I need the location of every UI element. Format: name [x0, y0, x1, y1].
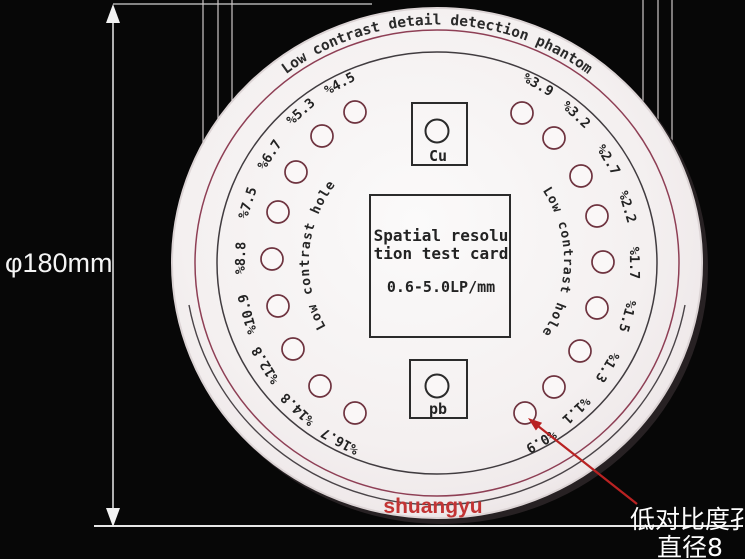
contrast-hole: [285, 161, 307, 183]
callout-text-line1: 低对比度孔: [630, 505, 745, 534]
contrast-hole: [569, 340, 591, 362]
phantom-disc: [172, 8, 702, 518]
contrast-hole: [543, 376, 565, 398]
contrast-hole: [309, 375, 331, 397]
contrast-hole: [267, 201, 289, 223]
contrast-hole: [543, 127, 565, 149]
cu-label: Cu: [429, 147, 447, 165]
contrast-hole: [511, 102, 533, 124]
contrast-hole: [570, 165, 592, 187]
phantom-scene: Low contrast detail detection phantom Lo…: [0, 0, 745, 559]
pb-label: pb: [429, 400, 447, 418]
pb-hole: [426, 375, 449, 398]
contrast-hole: [261, 248, 283, 270]
contrast-hole: [586, 297, 608, 319]
contrast-hole: [592, 251, 614, 273]
cu-hole: [426, 120, 449, 143]
watermark-text: shuangyu: [383, 495, 482, 518]
callout-text-line2: 直径8: [657, 533, 723, 559]
card-title-line1: Spatial resolu: [374, 226, 509, 245]
contrast-hole: [344, 402, 366, 424]
contrast-hole: [586, 205, 608, 227]
contrast-hole: [344, 101, 366, 123]
hole-size-label: %1.7: [626, 247, 642, 280]
card-title-line2: tion test card: [374, 244, 509, 263]
annotated-phantom-photo: Low contrast detail detection phantom Lo…: [0, 0, 745, 559]
contrast-hole: [311, 125, 333, 147]
contrast-hole: [282, 338, 304, 360]
contrast-hole: [267, 295, 289, 317]
hole-size-label: %8.8: [233, 242, 250, 275]
card-lp-range: 0.6-5.0LP/mm: [387, 278, 495, 296]
diameter-dimension-label: φ180mm: [5, 248, 113, 278]
